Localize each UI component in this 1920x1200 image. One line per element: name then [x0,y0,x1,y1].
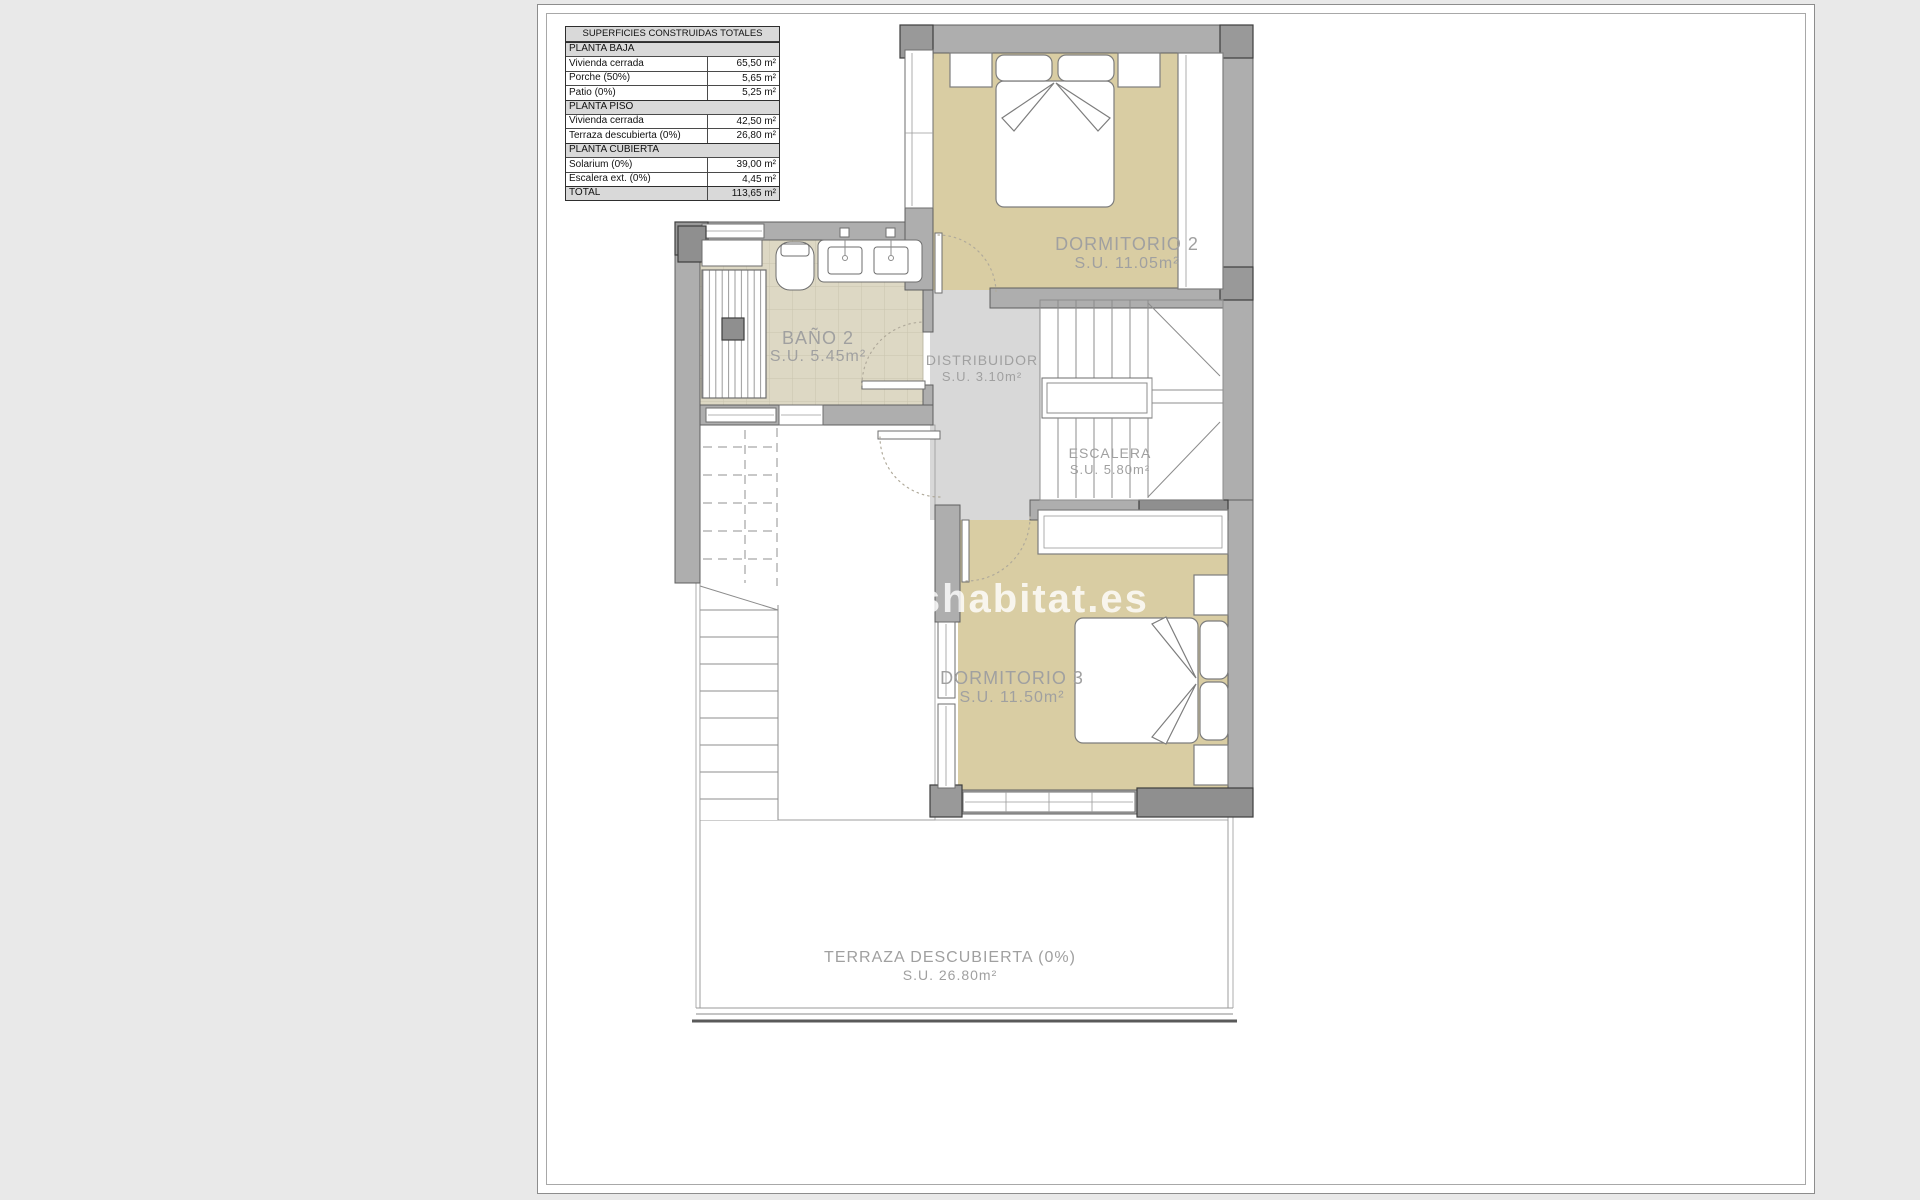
table-row: Escalera ext. (0%)4,45 m² [566,172,779,186]
pillar-bedroom3-sw [930,785,962,817]
pillow [996,55,1052,81]
wall-east-lower [1228,500,1253,792]
pillar-ne [1220,25,1253,58]
party-wall-panel [905,50,933,208]
bedroom3-west-window-2 [938,704,955,788]
label-distribuidor: DISTRIBUIDOR [926,352,1038,368]
bath-cabinet [702,240,762,266]
pillar-east-mid [1220,267,1253,300]
table-row: Vivienda cerrada65,50 m² [566,56,779,70]
table-row-section: PLANTA CUBIERTA [566,143,779,157]
wall-north [900,25,1253,53]
table-row: Patio (0%)5,25 m² [566,85,779,99]
nightstand [950,53,992,87]
overhang-dashed-lines [703,428,777,586]
pillow [1200,682,1228,740]
label-terraza-area: S.U. 26.80m² [903,967,997,983]
areas-table: SUPERFICIES CONSTRUIDAS TOTALES PLANTA B… [565,26,780,201]
wardrobe-bedroom3 [1038,510,1228,554]
exterior-staircase [700,586,778,820]
tap-1 [840,228,849,237]
table-row-total: TOTAL113,65 m² [566,186,779,200]
table-row: Vivienda cerrada42,50 m² [566,114,779,128]
label-bano2: BAÑO 2 [782,327,854,348]
wall-bedroom3-se-dark [1137,788,1253,817]
label-bano2-area: S.U. 5.45m² [770,348,866,365]
nightstand [1118,53,1160,87]
table-row-section: PLANTA BAJA [566,42,779,56]
tap-2 [886,228,895,237]
label-dormitorio2-area: S.U. 11.05m² [1074,255,1179,272]
label-dormitorio3: DORMITORIO 3 [940,668,1084,688]
table-row: Porche (50%)5,65 m² [566,71,779,85]
pillow [1058,55,1114,81]
door-terrace-leaf [878,431,940,439]
toilet-cistern [781,244,809,256]
table-row: Solarium (0%)39,00 m² [566,157,779,171]
areas-table-title: SUPERFICIES CONSTRUIDAS TOTALES [566,27,779,42]
table-row: Terraza descubierta (0%)26,80 m² [566,128,779,142]
pillow [1200,621,1228,679]
label-dormitorio3-area: S.U. 11.50m² [959,689,1064,706]
wall-west [675,240,700,583]
label-terraza: TERRAZA DESCUBIERTA (0%) [824,949,1076,966]
label-escalera-area: S.U. 5.80m² [1070,462,1150,477]
bed-2 [996,81,1114,207]
door-bedroom2-leaf [935,233,942,293]
label-dormitorio2: DORMITORIO 2 [1055,234,1199,254]
wall-bedroom2-south [990,288,1223,308]
watermark: yushabitat.es [867,577,1149,621]
door-bathroom-leaf [862,381,925,389]
floor-plan: DORMITORIO 2 S.U. 11.05m² BAÑO 2 S.U. 5.… [0,0,1920,1200]
shower-drain [722,318,744,340]
door-bedroom3-leaf [962,520,969,582]
stair-void-outer [1042,378,1152,418]
nightstand [1194,575,1228,615]
label-distribuidor-area: S.U. 3.10m² [942,369,1022,384]
nightstand [1194,745,1228,785]
label-escalera: ESCALERA [1069,445,1152,461]
bed-3 [1075,618,1198,743]
table-row-section: PLANTA PISO [566,100,779,114]
